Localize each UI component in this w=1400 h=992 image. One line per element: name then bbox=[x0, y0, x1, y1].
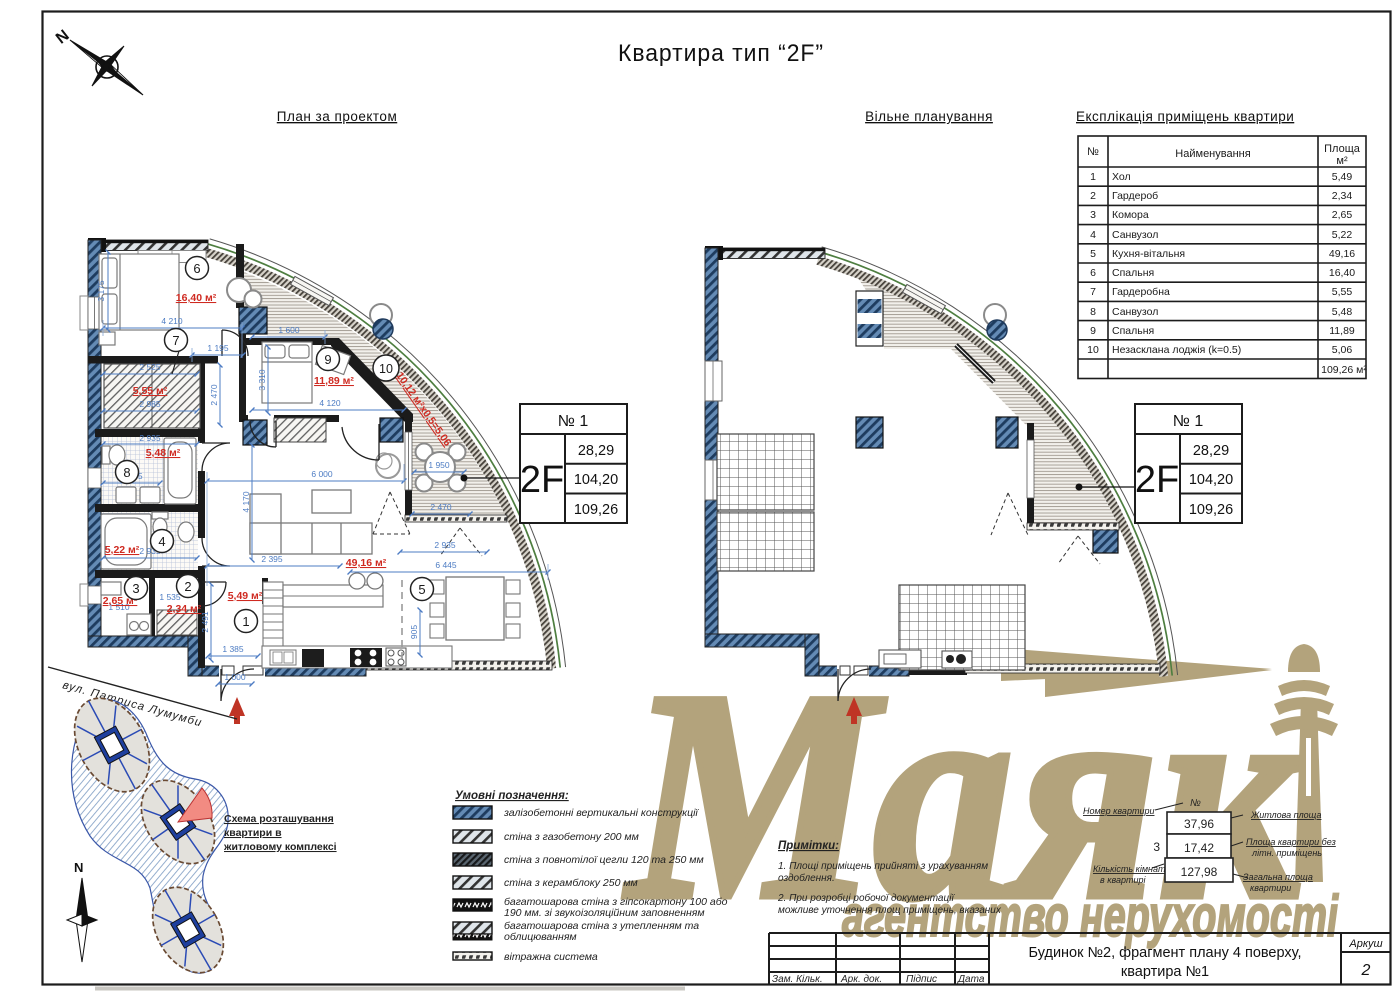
svg-text:Кількість кімнат: Кількість кімнат bbox=[1093, 864, 1166, 874]
svg-text:м²: м² bbox=[1336, 155, 1348, 167]
svg-text:49,16: 49,16 bbox=[1329, 248, 1355, 260]
svg-text:49,16 м²: 49,16 м² bbox=[346, 557, 387, 569]
svg-text:Аркуш: Аркуш bbox=[1348, 938, 1382, 950]
svg-text:109,26: 109,26 bbox=[574, 502, 618, 518]
svg-text:1 950: 1 950 bbox=[428, 460, 450, 470]
svg-text:2 395: 2 395 bbox=[261, 554, 283, 564]
svg-text:2 470: 2 470 bbox=[430, 502, 452, 512]
svg-text:залізобетонні вертикальні конс: залізобетонні вертикальні конструкції bbox=[503, 807, 699, 819]
svg-text:5: 5 bbox=[418, 582, 425, 597]
svg-text:оздоблення.: оздоблення. bbox=[778, 872, 835, 884]
svg-text:стіна з повнотілої цегли 120 т: стіна з повнотілої цегли 120 та 250 мм bbox=[504, 854, 704, 866]
svg-text:№ 1: № 1 bbox=[1173, 413, 1204, 430]
svg-text:127,98: 127,98 bbox=[1181, 865, 1218, 879]
svg-text:Примітки:: Примітки: bbox=[778, 840, 839, 852]
svg-text:5,06: 5,06 bbox=[1332, 344, 1353, 356]
svg-text:Гардероб: Гардероб bbox=[1112, 190, 1158, 202]
svg-text:№: № bbox=[1190, 798, 1201, 809]
svg-text:№ 1: № 1 bbox=[558, 413, 589, 430]
svg-text:905: 905 bbox=[409, 625, 419, 639]
svg-text:Кухня-вітальня: Кухня-вітальня bbox=[1112, 248, 1185, 260]
svg-text:1 195: 1 195 bbox=[207, 343, 229, 353]
svg-text:3: 3 bbox=[1153, 840, 1160, 854]
svg-text:6 445: 6 445 bbox=[435, 560, 457, 570]
svg-text:літн. приміщень: літн. приміщень bbox=[1251, 848, 1322, 858]
svg-text:5,48 м²: 5,48 м² bbox=[146, 447, 181, 459]
svg-text:Номер квартири: Номер квартири bbox=[1083, 806, 1154, 816]
svg-text:2 935: 2 935 bbox=[139, 433, 161, 443]
svg-text:Квартира тип “2F”: Квартира тип “2F” bbox=[618, 40, 824, 67]
svg-text:2F: 2F bbox=[1135, 459, 1179, 501]
svg-text:11,89: 11,89 bbox=[1329, 325, 1355, 337]
svg-text:стіна з газобетону 200 мм: стіна з газобетону 200 мм bbox=[504, 831, 639, 843]
svg-text:Площа: Площа bbox=[1324, 143, 1361, 155]
svg-text:9: 9 bbox=[324, 352, 331, 367]
svg-text:Гардеробна: Гардеробна bbox=[1112, 286, 1170, 298]
svg-text:28,29: 28,29 bbox=[1193, 443, 1229, 459]
svg-text:Вільне планування: Вільне планування bbox=[865, 109, 993, 124]
svg-text:Дата: Дата bbox=[957, 974, 985, 985]
svg-text:Санвузол: Санвузол bbox=[1112, 229, 1158, 241]
svg-text:вітражна система: вітражна система bbox=[504, 951, 598, 963]
svg-text:житловому комплексі: житловому комплексі bbox=[223, 841, 337, 853]
svg-text:5,22 м²: 5,22 м² bbox=[105, 544, 140, 556]
svg-text:1 600: 1 600 bbox=[278, 325, 300, 335]
svg-text:Підпис: Підпис bbox=[906, 974, 937, 985]
svg-text:10: 10 bbox=[379, 362, 393, 376]
svg-text:1 385: 1 385 bbox=[222, 644, 244, 654]
svg-text:1: 1 bbox=[242, 614, 249, 629]
svg-text:2F: 2F bbox=[520, 459, 564, 501]
svg-text:7: 7 bbox=[1090, 286, 1096, 298]
svg-text:в квартирі: в квартирі bbox=[1100, 875, 1146, 885]
svg-text:1: 1 bbox=[1090, 171, 1096, 183]
svg-text:1 535: 1 535 bbox=[159, 592, 181, 602]
svg-text:5,55 м²: 5,55 м² bbox=[133, 385, 168, 397]
svg-text:2,65: 2,65 bbox=[1332, 209, 1353, 221]
svg-text:5,49: 5,49 bbox=[1332, 171, 1353, 183]
svg-text:6 000: 6 000 bbox=[311, 469, 333, 479]
svg-text:104,20: 104,20 bbox=[1189, 472, 1233, 488]
svg-text:Хол: Хол bbox=[1112, 171, 1131, 183]
svg-text:План за проектом: План за проектом bbox=[277, 109, 397, 124]
svg-text:4: 4 bbox=[158, 534, 165, 549]
svg-text:4 170: 4 170 bbox=[241, 491, 251, 513]
svg-text:6: 6 bbox=[1090, 267, 1096, 279]
svg-text:N: N bbox=[74, 860, 83, 875]
svg-text:5: 5 bbox=[1090, 248, 1096, 260]
svg-text:7: 7 bbox=[172, 333, 179, 348]
svg-text:37,96: 37,96 bbox=[1184, 817, 1214, 831]
svg-text:Експлікація приміщень квартири: Експлікація приміщень квартири bbox=[1076, 109, 1294, 124]
svg-text:квартира №1: квартира №1 bbox=[1121, 964, 1209, 980]
svg-text:2: 2 bbox=[1361, 962, 1371, 979]
svg-text:6: 6 bbox=[193, 261, 200, 276]
svg-text:10: 10 bbox=[1087, 344, 1099, 356]
svg-text:16,40 м²: 16,40 м² bbox=[176, 292, 217, 304]
svg-text:5,49 м²: 5,49 м² bbox=[228, 590, 263, 602]
svg-text:Незасклана лоджія (k=0.5): Незасклана лоджія (k=0.5) bbox=[1112, 344, 1241, 356]
svg-text:2 525: 2 525 bbox=[139, 362, 161, 372]
svg-text:28,29: 28,29 bbox=[578, 443, 614, 459]
svg-text:3 310: 3 310 bbox=[257, 369, 267, 391]
svg-text:Спальня: Спальня bbox=[1112, 267, 1154, 279]
svg-text:Площа квартири без: Площа квартири без bbox=[1246, 837, 1336, 847]
svg-text:9: 9 bbox=[1090, 325, 1096, 337]
svg-text:Санвузол: Санвузол bbox=[1112, 306, 1158, 318]
svg-text:17,42: 17,42 bbox=[1184, 841, 1214, 855]
svg-text:Будинок №2, фрагмент плану 4 п: Будинок №2, фрагмент плану 4 поверху, bbox=[1029, 945, 1302, 961]
svg-text:190 мм. зі звукоізоляційним за: 190 мм. зі звукоізоляційним заповненням bbox=[504, 907, 705, 919]
svg-text:Житлова площа: Житлова площа bbox=[1250, 810, 1321, 820]
svg-text:Зам. Кільк.: Зам. Кільк. bbox=[772, 974, 823, 985]
svg-text:2 935: 2 935 bbox=[434, 540, 456, 550]
svg-text:Загальна площа: Загальна площа bbox=[1243, 872, 1313, 882]
svg-text:Схема розташування: Схема розташування bbox=[224, 813, 334, 825]
svg-text:2 985: 2 985 bbox=[139, 399, 161, 409]
svg-text:3: 3 bbox=[1090, 209, 1096, 221]
svg-text:облицюванням: облицюванням bbox=[504, 931, 577, 943]
svg-text:1 000: 1 000 bbox=[224, 672, 246, 682]
svg-text:можливе уточнення площ приміще: можливе уточнення площ приміщень, вказан… bbox=[778, 905, 1002, 916]
svg-text:2 491: 2 491 bbox=[200, 611, 210, 633]
svg-text:5,48: 5,48 bbox=[1332, 306, 1353, 318]
svg-text:2: 2 bbox=[184, 579, 191, 594]
svg-text:4 120: 4 120 bbox=[319, 398, 341, 408]
svg-text:2,34: 2,34 bbox=[1332, 190, 1353, 202]
svg-text:5,22: 5,22 bbox=[1332, 229, 1353, 241]
svg-text:стіна з керамблоку 250 мм: стіна з керамблоку 250 мм bbox=[504, 877, 638, 889]
svg-text:3 175: 3 175 bbox=[96, 280, 106, 302]
svg-text:Умовні позначення:: Умовні позначення: bbox=[455, 790, 569, 802]
svg-text:5,55: 5,55 bbox=[1332, 286, 1353, 298]
svg-text:8: 8 bbox=[1090, 306, 1096, 318]
svg-text:Найменування: Найменування bbox=[1175, 148, 1250, 160]
svg-text:11,89 м²: 11,89 м² bbox=[314, 375, 354, 387]
svg-text:109,26: 109,26 bbox=[1189, 502, 1233, 518]
svg-text:109,26 м²: 109,26 м² bbox=[1321, 364, 1367, 376]
svg-text:2: 2 bbox=[1090, 190, 1096, 202]
svg-text:104,20: 104,20 bbox=[574, 472, 618, 488]
svg-text:2. При розробці робочої докуме: 2. При розробці робочої документації bbox=[777, 892, 955, 904]
svg-text:№: № bbox=[1087, 146, 1099, 158]
svg-text:Комора: Комора bbox=[1112, 209, 1149, 221]
svg-text:1. Площі приміщень прийняті з: 1. Площі приміщень прийняті з урахування… bbox=[778, 861, 988, 872]
svg-text:16,40: 16,40 bbox=[1329, 267, 1355, 279]
svg-text:2,34 м²: 2,34 м² bbox=[167, 603, 202, 615]
svg-text:4 210: 4 210 bbox=[161, 316, 183, 326]
svg-text:Арк. док.: Арк. док. bbox=[840, 974, 882, 985]
svg-text:8: 8 bbox=[123, 465, 130, 480]
svg-text:квартири: квартири bbox=[1250, 883, 1291, 893]
svg-text:квартири в: квартири в bbox=[224, 827, 282, 839]
svg-text:3: 3 bbox=[132, 581, 139, 596]
svg-text:Спальня: Спальня bbox=[1112, 325, 1154, 337]
svg-text:2 470: 2 470 bbox=[209, 384, 219, 406]
svg-text:4: 4 bbox=[1090, 229, 1096, 241]
